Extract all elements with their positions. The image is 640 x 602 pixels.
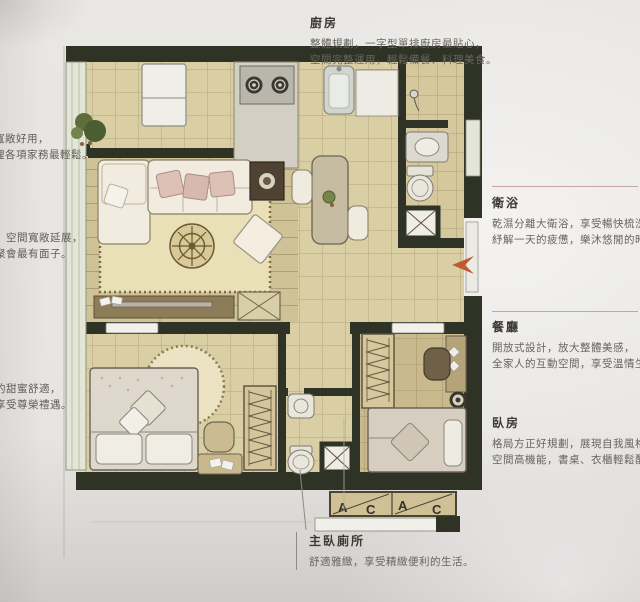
speaker (450, 392, 467, 409)
bedroom2-bed (368, 408, 466, 472)
dining-note-line2: 全家人的互動空間，享受溫情生活。 (492, 356, 640, 372)
kitchen-note: 廚房 整體規劃，一字型單排廚房最貼心， 空間完整運用，輕鬆備餐、料理美食。 (310, 14, 497, 68)
bedroom-chair (204, 422, 234, 452)
bedroom-note: 臥房 格局方正好規劃，展現自我風格， 空間高機能，書桌、衣櫃輕鬆配置。 (492, 414, 640, 468)
ac-label-a1: A (338, 500, 348, 515)
master-bath-sink (288, 394, 314, 418)
living-room (94, 160, 284, 320)
tv-console (94, 296, 234, 318)
corridor-opening (290, 322, 350, 334)
master-toilet-note-line1: 舒適雅緻，享受精緻便利的生活。 (309, 554, 474, 570)
bedroom2-sliding-door (392, 323, 444, 333)
bathroom-vanity (406, 132, 448, 162)
dining-note: 餐廳 開放式設計，放大整體美感， 全家人的互動空間，享受溫情生活。 (492, 318, 640, 372)
left-middle-line1: ，空間寬敞延展， (0, 230, 83, 246)
bed-pillow-right (146, 434, 192, 464)
bed-pillow-left (96, 434, 142, 464)
master-bedroom-sliding-door (106, 323, 158, 333)
ac-ledge (315, 518, 443, 531)
master-bed (90, 368, 198, 470)
pipe-duct (404, 208, 438, 238)
dining-chair-left (292, 170, 312, 204)
dining-note-rule (492, 311, 638, 312)
ac-label-c1: C (366, 502, 376, 517)
ac-ledge-cap (436, 516, 460, 532)
left-top-note: 寬敞好用， 理各項家務最輕鬆。 (0, 131, 93, 163)
ac-label-a2: A (398, 498, 408, 513)
left-bottom-line2: 享受尊榮禮遇。 (0, 397, 72, 413)
bathroom-note-line1: 乾濕分離大衛浴，享受暢快梳洗， (492, 216, 640, 232)
left-bottom-line1: 的甜蜜舒適， (0, 381, 72, 397)
kitchen-note-line1: 整體規劃，一字型單排廚房最貼心， (310, 36, 497, 52)
kitchen-note-line2: 空間完整運用，輕鬆備餐、料理美食。 (310, 52, 497, 68)
floorplan-drawing: A C A C (0, 0, 640, 602)
master-toilet-note: 主臥廁所 舒適雅緻，享受精緻便利的生活。 (296, 532, 474, 570)
entry-hall-floor (398, 248, 464, 322)
desk-chair (424, 348, 450, 380)
left-middle-note: ，空間寬敞延展， 聚會最有面子。 (0, 230, 83, 262)
bedroom-note-line1: 格局方正好規劃，展現自我風格， (492, 436, 640, 452)
stove (240, 66, 294, 104)
side-table (250, 162, 284, 200)
bedroom-note-line2: 空間高機能，書桌、衣櫃輕鬆配置。 (492, 452, 640, 468)
dining-note-line1: 開放式設計，放大整體美感， (492, 340, 640, 356)
master-toilet-note-title: 主臥廁所 (309, 532, 474, 549)
bedroom2-wardrobe (362, 334, 394, 408)
bathroom-note-line2: 紓解一天的疲憊，樂沐悠閒的時光。 (492, 232, 640, 248)
master-wardrobe (244, 386, 276, 470)
ac-platform: A C A C (92, 492, 460, 532)
kitchen-sink (324, 66, 354, 114)
toilet (407, 166, 433, 201)
pipe-duct-2 (322, 444, 352, 472)
dining-chair-right (348, 206, 368, 240)
left-top-line2: 理各項家務最輕鬆。 (0, 147, 93, 163)
bed-pillow (444, 420, 462, 466)
photographed-floorplan-page: A C A C 廚房 整體規劃，一字型單排廚房最貼心， 空間完整運用，輕鬆備餐、… (0, 0, 640, 602)
bathroom-note: 衛浴 乾濕分離大衛浴，享受暢快梳洗， 紓解一天的疲憊，樂沐悠閒的時光。 (492, 194, 640, 248)
bedside-table (198, 454, 242, 474)
bathroom-note-rule (492, 186, 638, 187)
coffee-table-ship-wheel (170, 224, 214, 268)
dining-note-title: 餐廳 (492, 318, 640, 335)
ac-label-c2: C (432, 502, 442, 517)
bedroom-note-title: 臥房 (492, 414, 640, 431)
shoe-cabinet (238, 292, 280, 320)
left-top-line1: 寬敞好用， (0, 131, 93, 147)
kitchen-note-title: 廚房 (310, 14, 497, 31)
bathroom-note-title: 衛浴 (492, 194, 640, 211)
kitchen-worktop (356, 70, 398, 116)
bathroom-window (466, 120, 480, 176)
refrigerator (142, 64, 186, 126)
left-middle-line2: 聚會最有面子。 (0, 246, 83, 262)
left-bottom-note: 的甜蜜舒適， 享受尊榮禮遇。 (0, 381, 72, 413)
master-toilet (288, 446, 314, 474)
